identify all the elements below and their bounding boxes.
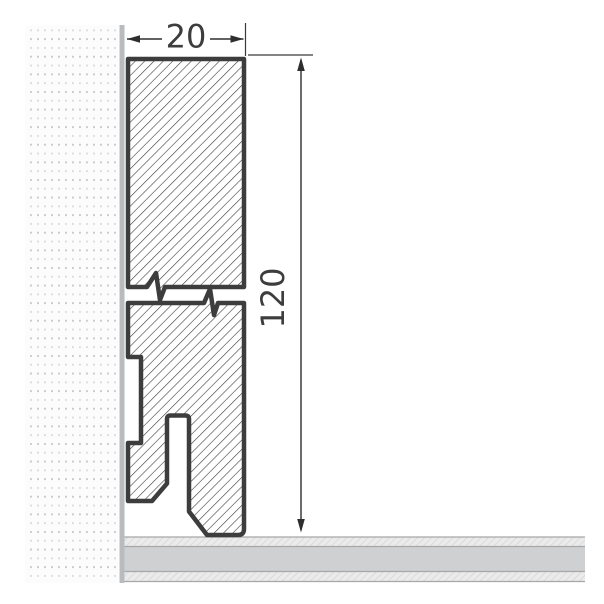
arrow-down-icon xyxy=(297,519,305,533)
skirting-profile-diagram: 20 120 xyxy=(0,0,604,604)
width-dimension-label: 20 xyxy=(166,18,207,56)
wall-surface-strip xyxy=(120,25,125,583)
floor-top-screed-layer xyxy=(125,537,586,547)
floor-bottom-screed-layer xyxy=(125,572,586,582)
width-dimension: 20 xyxy=(127,18,246,57)
height-dimension-label: 120 xyxy=(254,267,292,328)
board-upper-section xyxy=(128,59,244,300)
wall xyxy=(25,25,125,583)
floor xyxy=(125,537,586,582)
wall-plaster-texture xyxy=(25,25,119,583)
diagram-canvas: 20 120 xyxy=(0,0,604,604)
board-lower-section xyxy=(128,289,244,535)
skirting-board xyxy=(128,59,244,535)
height-dimension: 120 xyxy=(248,55,313,533)
arrow-right-icon xyxy=(231,35,244,42)
arrow-up-icon xyxy=(297,58,305,72)
arrow-left-icon xyxy=(127,35,140,42)
